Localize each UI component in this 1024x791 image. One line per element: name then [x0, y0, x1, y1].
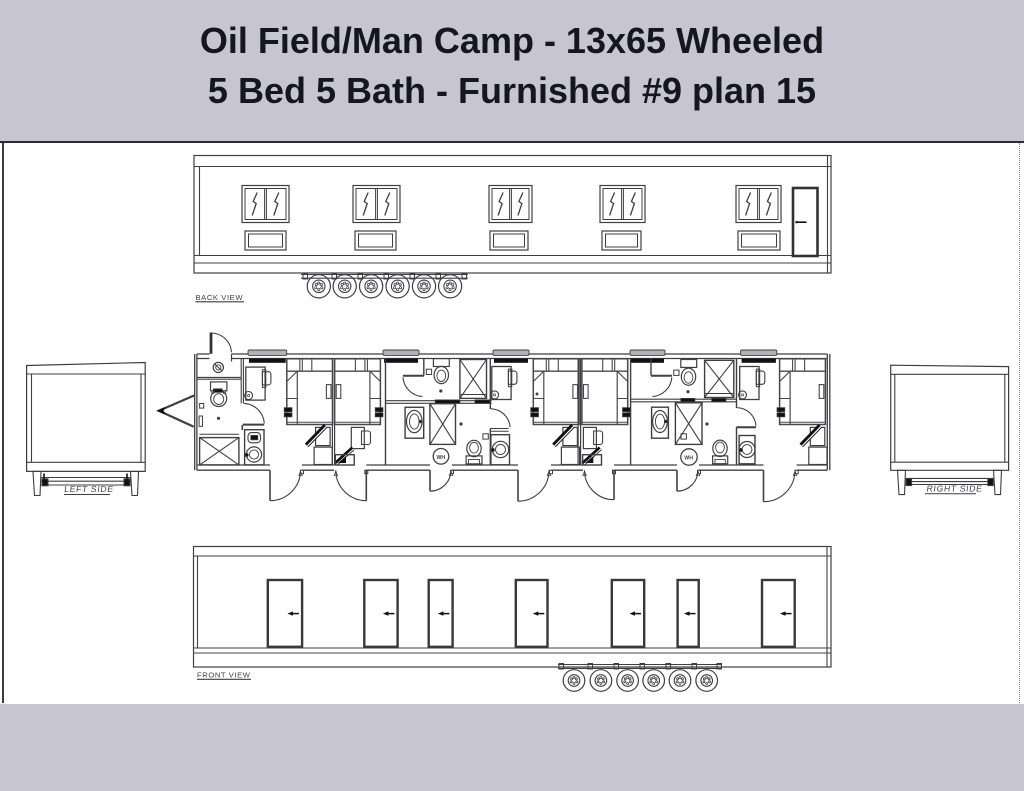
svg-text:WH: WH: [684, 456, 693, 462]
svg-text:FRONT VIEW: FRONT VIEW: [197, 671, 251, 680]
svg-text:WH: WH: [437, 455, 446, 461]
svg-text:LEFT SIDE: LEFT SIDE: [64, 484, 115, 494]
svg-text:BACK VIEW: BACK VIEW: [196, 293, 244, 302]
svg-text:RIGHT SIDE: RIGHT SIDE: [926, 484, 983, 494]
